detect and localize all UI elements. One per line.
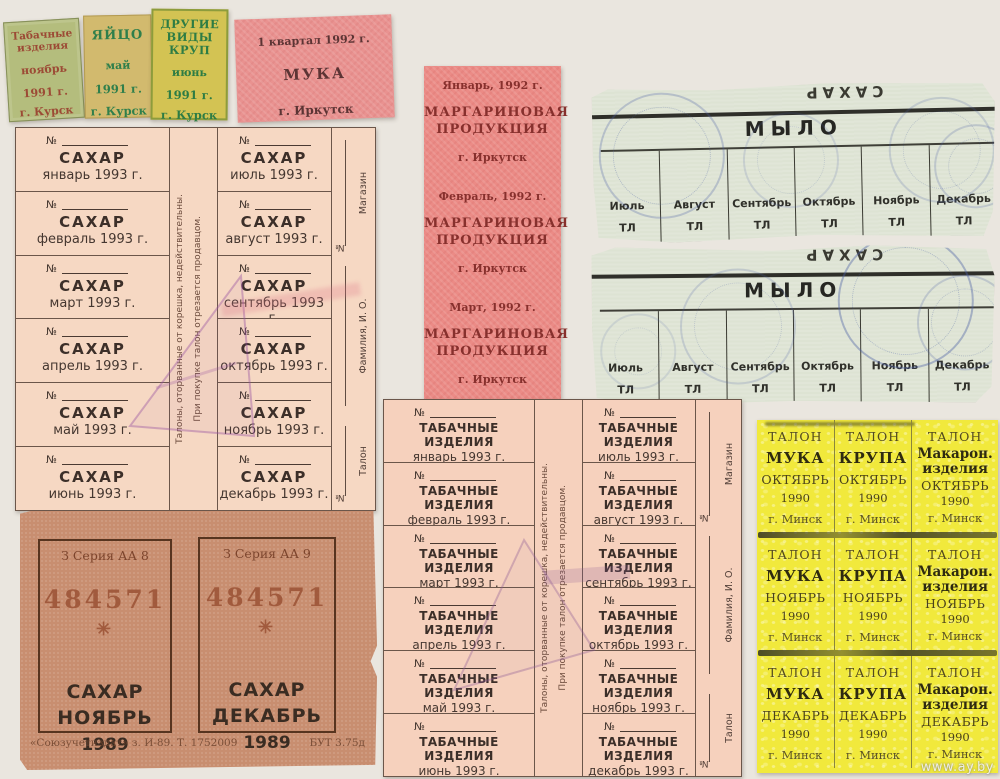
- city-label: г. Курск: [152, 108, 225, 123]
- number-label: №: [239, 200, 250, 210]
- number-label: №: [699, 758, 709, 768]
- coupon-pair-sugar-1989: З Серия АА 8 484571 ✳ САХАР НОЯБРЬ 1989 …: [20, 511, 377, 770]
- number-blank-line: [620, 605, 676, 606]
- month-label: июнь 1993 г.: [384, 764, 534, 776]
- sugar-coupon-cell: №САХАРиюнь 1993 г.: [16, 447, 169, 510]
- city-label: г. Минск: [768, 630, 822, 644]
- sugar-coupon-cell: №САХАРиюль 1993 г.: [217, 128, 331, 192]
- sugar-stub-column: Магазин№ Фамилия, И. О. Талон№: [331, 128, 375, 510]
- month-label: январь 1993 г.: [384, 450, 534, 463]
- coupon-sheet-sugar-1993: №САХАРянварь 1993 г. №САХАРфевраль 1993 …: [15, 127, 376, 511]
- product-name: ТАБАЧНЫЕ ИЗДЕЛИЯ: [384, 484, 534, 512]
- sugar-left-column: №САХАРянварь 1993 г. №САХАРфевраль 1993 …: [16, 128, 169, 510]
- city-label: г. Минск: [928, 747, 982, 761]
- product-name: САХАР: [200, 679, 334, 701]
- talon-label: ТАЛОН: [846, 665, 900, 680]
- talon-label: ТАЛОН: [846, 547, 900, 562]
- product-name: САХАР: [217, 468, 331, 486]
- number-label: №: [239, 136, 250, 146]
- sugar-coupon-cell: №САХАРоктябрь 1993 г.: [217, 319, 331, 383]
- talon-cell-flour: ТАЛОНМУКАНОЯБРЬ1990г. Минск: [757, 538, 835, 650]
- product-name: ТАБАЧНЫЕ ИЗДЕЛИЯ: [582, 735, 695, 763]
- year-label: 1990: [781, 727, 810, 741]
- product-name: САХАР: [217, 404, 331, 422]
- number-label: №: [604, 596, 615, 606]
- series-label: З Серия АА 8: [40, 548, 170, 563]
- sugar-coupon-cell: №САХАРмарт 1993 г.: [16, 256, 169, 320]
- month-label: ОКТЯБРЬ: [839, 472, 907, 487]
- coupon-soap-strip-2: САХАР МЫЛО ИюльТЛ АвгустТЛ СентябрьТЛ Ок…: [591, 244, 995, 406]
- product-name: ТАБАЧНЫЕ ИЗДЕЛИЯ: [384, 735, 534, 763]
- number-label: №: [239, 455, 250, 465]
- year-label: 1990: [781, 609, 810, 623]
- sugar-coupon-cell: №САХАРдекабрь 1993 г.: [217, 447, 331, 510]
- month-label: НОЯБРЬ: [40, 707, 170, 729]
- year-label: 1990: [858, 609, 887, 623]
- month-label: Октябрь: [801, 359, 854, 372]
- shop-label: Магазин: [724, 443, 735, 485]
- number-label: №: [699, 512, 709, 522]
- blank-line: [709, 694, 710, 762]
- product-name: ТАБАЧНЫЕ ИЗДЕЛИЯ: [582, 672, 695, 700]
- number-label: №: [414, 534, 425, 544]
- tobacco-coupon-cell: №ТАБАЧНЫЕ ИЗДЕЛИЯмай 1993 г.: [384, 651, 534, 714]
- number-blank-line: [62, 273, 128, 274]
- blue-round-stamp: [680, 268, 797, 385]
- number-blank-line: [255, 145, 311, 146]
- talon-cell-flour: ТАЛОНМУКАДЕКАБРЬ1990г. Минск: [757, 656, 835, 768]
- month-label: апрель 1993 г.: [16, 359, 169, 374]
- year-label: 1990: [940, 494, 969, 508]
- minsk-row-october: ТАЛОНМУКАОКТЯБРЬ1990г. Минск ТАЛОНКРУПАО…: [757, 420, 998, 532]
- tobacco-coupon-cell: №ТАБАЧНЫЕ ИЗДЕЛИЯиюль 1993 г.: [582, 400, 695, 463]
- sugar-coupon-cell: №САХАРавгуст 1993 г.: [217, 192, 331, 256]
- sugar-coupon-cell: №САХАРноябрь 1993 г.: [217, 383, 331, 447]
- product-name: МУКА: [766, 685, 825, 703]
- number-blank-line: [620, 731, 676, 732]
- product-name: изделия: [922, 461, 988, 477]
- month-label: Март, 1992 г.: [424, 301, 561, 314]
- tobacco-coupon-cell: №ТАБАЧНЫЕ ИЗДЕЛИЯавгуст 1993 г.: [582, 463, 695, 526]
- product-name: изделия: [922, 697, 988, 713]
- city-label: г. Минск: [928, 629, 982, 643]
- spine-warning-text: При покупке талон отрезается продавцом.: [558, 485, 568, 691]
- number-label: №: [414, 596, 425, 606]
- number-label: №: [604, 722, 615, 732]
- tobacco-coupon-cell: №ТАБАЧНЫЕ ИЗДЕЛИЯноябрь 1993 г.: [582, 651, 695, 714]
- product-name: САХАР: [217, 213, 331, 231]
- city-label: г. Иркутск: [424, 151, 561, 164]
- number-label: №: [414, 471, 425, 481]
- city-label: г. Иркутск: [237, 100, 394, 119]
- margarine-section: Март, 1992 г. МАРГАРИНОВАЯ ПРОДУКЦИЯ г. …: [424, 288, 561, 399]
- tobacco-coupon-cell: №ТАБАЧНЫЕ ИЗДЕЛИЯмарт 1993 г.: [384, 526, 534, 589]
- minsk-row-december: ТАЛОНМУКАДЕКАБРЬ1990г. Минск ТАЛОНКРУПАД…: [757, 656, 998, 768]
- talon-label: ТАЛОН: [768, 547, 822, 562]
- month-label: НОЯБРЬ: [925, 596, 985, 611]
- number-blank-line: [620, 543, 676, 544]
- product-name: ТАБАЧНЫЕ ИЗДЕЛИЯ: [582, 421, 695, 449]
- number-blank-line: [62, 209, 128, 210]
- number-blank-line: [255, 209, 311, 210]
- talon-label: ТАЛОН: [768, 429, 822, 444]
- star-symbol: ✳: [96, 619, 114, 640]
- margarine-section: Февраль, 1992 г. МАРГАРИНОВАЯ ПРОДУКЦИЯ …: [424, 177, 561, 288]
- month-label: ДЕКАБРЬ: [921, 714, 989, 729]
- month-label: июнь: [153, 66, 226, 80]
- blank-line: [709, 536, 710, 674]
- year-label: 1991 г.: [85, 81, 151, 96]
- month-label: Январь, 1992 г.: [424, 79, 561, 92]
- sugar-coupon-cell: №САХАРапрель 1993 г.: [16, 319, 169, 383]
- month-label: июль 1993 г.: [217, 168, 331, 183]
- year-label: 1990: [858, 491, 887, 505]
- product-name: ТАБАЧНЫЕ ИЗДЕЛИЯ: [384, 547, 534, 575]
- sugar-right-column: №САХАРиюль 1993 г. №САХАРавгуст 1993 г. …: [217, 128, 331, 510]
- product-name: изделия: [17, 39, 69, 54]
- number-blank-line: [620, 668, 676, 669]
- year-label: 1990: [940, 730, 969, 744]
- number-label: №: [46, 327, 57, 337]
- number-label: №: [46, 200, 57, 210]
- unit-label: ТЛ: [685, 383, 702, 396]
- name-label: Фамилия, И. О.: [724, 568, 735, 643]
- product-name: ТАБАЧНЫЕ ИЗДЕЛИЯ: [582, 484, 695, 512]
- month-label: май 1993 г.: [16, 423, 169, 438]
- site-watermark: www.ay.by: [921, 760, 994, 775]
- product-name: КРУПА: [839, 567, 907, 585]
- name-label: Фамилия, И. О.: [358, 299, 369, 374]
- talon-label: Талон: [724, 713, 735, 743]
- coupon-sheet-tobacco-1993: №ТАБАЧНЫЕ ИЗДЕЛИЯянварь 1993 г. №ТАБАЧНЫ…: [383, 399, 742, 777]
- product-name: ТАБАЧНЫЕ ИЗДЕЛИЯ: [582, 609, 695, 637]
- sugar-coupon-cell: №САХАРмай 1993 г.: [16, 383, 169, 447]
- product-name: САХАР: [16, 213, 169, 231]
- product-name: МУКА: [766, 567, 825, 585]
- number-blank-line: [430, 417, 496, 418]
- month-label: октябрь 1993 г.: [582, 638, 695, 651]
- shop-label: Магазин: [358, 172, 369, 214]
- unit-label: ТЛ: [819, 382, 836, 395]
- month-label: Февраль, 1992 г.: [424, 190, 561, 203]
- unit-label: ТЛ: [686, 220, 703, 233]
- product-name: МАРГАРИНОВАЯ: [424, 105, 569, 120]
- product-name: ТАБАЧНЫЕ ИЗДЕЛИЯ: [384, 609, 534, 637]
- product-name: ПРОДУКЦИЯ: [436, 122, 549, 137]
- blank-line: [345, 140, 346, 246]
- month-label: июнь 1993 г.: [16, 487, 169, 502]
- talon-label: Талон: [358, 446, 369, 476]
- number-label: №: [239, 264, 250, 274]
- blank-line: [345, 426, 346, 496]
- product-name: Макарон.: [918, 682, 993, 698]
- unit-label: ТЛ: [887, 381, 904, 394]
- talon-label: ТАЛОН: [928, 547, 982, 562]
- number-label: №: [604, 659, 615, 669]
- unit-label: ТЛ: [888, 216, 905, 229]
- coupon-kursk-egg-1991: ЯЙЦО май 1991 г. г. Курск: [83, 14, 153, 118]
- number-label: №: [604, 471, 615, 481]
- product-name: МАРГАРИНОВАЯ: [424, 327, 569, 342]
- month-label: ОКТЯБРЬ: [761, 472, 829, 487]
- tobacco-coupon-cell: №ТАБАЧНЫЕ ИЗДЕЛИЯапрель 1993 г.: [384, 588, 534, 651]
- month-label: НОЯБРЬ: [765, 590, 825, 605]
- number-label: №: [604, 534, 615, 544]
- unit-label: ТЛ: [754, 219, 771, 232]
- number-label: №: [604, 408, 615, 418]
- coupon-sheet-minsk-1990: ТАЛОНМУКАОКТЯБРЬ1990г. Минск ТАЛОНКРУПАО…: [757, 420, 998, 773]
- number-blank-line: [430, 480, 496, 481]
- product-name: САХАР: [16, 149, 169, 167]
- product-name: изделия: [922, 579, 988, 595]
- tobacco-coupon-cell: №ТАБАЧНЫЕ ИЗДЕЛИЯдекабрь 1993 г.: [582, 714, 695, 776]
- talon-cell-groats: ТАЛОНКРУПАОКТЯБРЬ1990г. Минск: [835, 420, 913, 532]
- number-label: №: [46, 264, 57, 274]
- month-label: февраль 1993 г.: [384, 513, 534, 526]
- product-name: САХАР: [16, 404, 169, 422]
- talon-label: ТАЛОН: [928, 429, 982, 444]
- talon-cell-pasta: ТАЛОНМакарон.изделияНОЯБРЬ1990г. Минск: [912, 538, 998, 650]
- month-label: апрель 1993 г.: [384, 638, 534, 651]
- month-label: февраль 1993 г.: [16, 232, 169, 247]
- number-label: №: [335, 492, 345, 502]
- month-label: НОЯБРЬ: [843, 590, 903, 605]
- month-label: март 1993 г.: [16, 296, 169, 311]
- number-blank-line: [430, 543, 496, 544]
- coupon-irkutsk-flour-1992: 1 квартал 1992 г. МУКА г. Иркутск: [234, 14, 394, 122]
- product-name: КРУП: [169, 43, 210, 57]
- month-label: декабрь 1993 г.: [217, 487, 331, 502]
- product-name: Макарон.: [918, 446, 993, 462]
- city-label: г. Курск: [9, 103, 84, 120]
- coupon-soap-strip-1: САХАР МЫЛО ИюльТЛ АвгустТЛ СентябрьТЛ Ок…: [591, 80, 997, 244]
- coupon-kursk-tobacco-1991: Табачные изделия ноябрь 1991 г. г. Курск: [3, 18, 85, 122]
- number-label: №: [46, 136, 57, 146]
- inverted-sugar-label: САХАР: [801, 82, 883, 102]
- number-blank-line: [620, 480, 676, 481]
- sugar-1989-december-cell: З Серия АА 9 484571 ✳ САХАР ДЕКАБРЬ 1989: [198, 537, 336, 733]
- number-blank-line: [255, 464, 311, 465]
- city-label: г. Минск: [768, 512, 822, 526]
- tobacco-coupon-cell: №ТАБАЧНЫЕ ИЗДЕЛИЯфевраль 1993 г.: [384, 463, 534, 526]
- print-code: БУТ 3.75д: [310, 737, 366, 749]
- spine-warning-text: При покупке талон отрезается продавцом.: [193, 216, 203, 422]
- city-label: г. Минск: [846, 748, 900, 762]
- sugar-coupon-cell: №САХАРфевраль 1993 г.: [16, 192, 169, 256]
- sugar-counterfoil-spine: Талоны, оторванные от корешка, недействи…: [169, 128, 218, 510]
- number-blank-line: [255, 273, 311, 274]
- number-blank-line: [255, 400, 311, 401]
- talon-label: ТАЛОН: [928, 665, 982, 680]
- unit-label: ТЛ: [752, 382, 769, 395]
- month-label: август 1993 г.: [217, 232, 331, 247]
- product-name: САХАР: [40, 681, 170, 703]
- month-label: ноябрь 1993 г.: [217, 423, 331, 438]
- tobacco-left-column: №ТАБАЧНЫЕ ИЗДЕЛИЯянварь 1993 г. №ТАБАЧНЫ…: [384, 400, 534, 776]
- product-name: ТАБАЧНЫЕ ИЗДЕЛИЯ: [384, 672, 534, 700]
- city-label: г. Минск: [768, 748, 822, 762]
- product-name: ТАБАЧНЫЕ ИЗДЕЛИЯ: [384, 421, 534, 449]
- unit-label: ТЛ: [619, 221, 636, 234]
- talon-label: ТАЛОН: [768, 665, 822, 680]
- product-name: МУКА: [766, 449, 825, 467]
- tobacco-coupon-cell: №ТАБАЧНЫЕ ИЗДЕЛИЯоктябрь 1993 г.: [582, 588, 695, 651]
- number-blank-line: [62, 400, 128, 401]
- month-label: ноябрь: [7, 61, 82, 78]
- talon-cell-groats: ТАЛОНКРУПАДЕКАБРЬ1990г. Минск: [835, 656, 913, 768]
- number-label: №: [414, 722, 425, 732]
- month-label: ДЕКАБРЬ: [761, 708, 829, 723]
- year-label: 1991 г.: [8, 84, 83, 101]
- number-blank-line: [430, 668, 496, 669]
- margarine-section: Январь, 1992 г. МАРГАРИНОВАЯ ПРОДУКЦИЯ г…: [424, 66, 561, 177]
- series-label: З Серия АА 9: [200, 546, 334, 561]
- number-blank-line: [255, 336, 311, 337]
- city-label: г. Минск: [846, 630, 900, 644]
- talon-label: ТАЛОН: [846, 429, 900, 444]
- year-label: 1990: [781, 491, 810, 505]
- product-name: САХАР: [217, 149, 331, 167]
- product-name: САХАР: [217, 340, 331, 358]
- scanned-ration-coupons-page: Табачные изделия ноябрь 1991 г. г. Курск…: [0, 0, 1000, 779]
- product-name: КРУПА: [839, 685, 907, 703]
- tobacco-coupon-cell: №ТАБАЧНЫЕ ИЗДЕЛИЯиюнь 1993 г.: [384, 714, 534, 776]
- year-label: 1990: [858, 727, 887, 741]
- talon-cell-groats: ТАЛОНКРУПАНОЯБРЬ1990г. Минск: [835, 538, 913, 650]
- coupon-kursk-groats-1991: ДРУГИЕ ВИДЫ КРУП июнь 1991 г. г. Курск: [151, 9, 229, 121]
- sugar-coupon-cell: №САХАРянварь 1993 г.: [16, 128, 169, 192]
- unit-label: ТЛ: [956, 214, 973, 227]
- blue-round-stamp: [600, 313, 677, 390]
- coupon-strip-irkutsk-margarine-1992: Январь, 1992 г. МАРГАРИНОВАЯ ПРОДУКЦИЯ г…: [424, 66, 561, 399]
- number-blank-line: [430, 605, 496, 606]
- product-name: САХАР: [16, 468, 169, 486]
- talon-cell-pasta: ТАЛОНМакарон.изделияДЕКАБРЬ1990г. Минск: [912, 656, 998, 768]
- city-label: г. Иркутск: [424, 262, 561, 275]
- month-label: ДЕКАБРЬ: [200, 705, 334, 727]
- printer-imprint: «Союзучетиздат» з. И-89. Т. 1752009: [30, 737, 237, 749]
- city-label: г. Курск: [86, 103, 152, 118]
- month-label: октябрь 1993 г.: [217, 359, 331, 374]
- city-label: г. Минск: [846, 512, 900, 526]
- product-name: ЯЙЦО: [84, 27, 150, 43]
- month-label: август 1993 г.: [582, 513, 695, 526]
- talon-cell-flour: ТАЛОНМУКАОКТЯБРЬ1990г. Минск: [757, 420, 835, 532]
- city-label: г. Иркутск: [424, 373, 561, 386]
- talon-cell-pasta: ТАЛОНМакарон.изделияОКТЯБРЬ1990г. Минск: [912, 420, 998, 532]
- month-label: март 1993 г.: [384, 576, 534, 589]
- unit-label: ТЛ: [821, 217, 838, 230]
- tobacco-counterfoil-spine: Талоны, оторванные от корешка, недействи…: [534, 400, 583, 776]
- month-label: ОКТЯБРЬ: [921, 478, 989, 493]
- product-name: САХАР: [16, 277, 169, 295]
- quarter-label: 1 квартал 1992 г.: [235, 31, 392, 49]
- minsk-row-november: ТАЛОНМУКАНОЯБРЬ1990г. Минск ТАЛОНКРУПАНО…: [757, 538, 998, 650]
- number-label: №: [239, 327, 250, 337]
- product-name: Макарон.: [918, 564, 993, 580]
- number-blank-line: [62, 145, 128, 146]
- serial-number: 484571: [44, 585, 166, 614]
- number-label: №: [46, 455, 57, 465]
- month-label: май 1993 г.: [384, 701, 534, 714]
- city-label: г. Минск: [928, 511, 982, 525]
- serial-number: 484571: [206, 583, 328, 612]
- month-label: январь 1993 г.: [16, 168, 169, 183]
- spine-warning-text: Талоны, оторванные от корешка, недействи…: [175, 194, 185, 444]
- unit-label: ТЛ: [954, 380, 971, 393]
- month-label: ДЕКАБРЬ: [839, 708, 907, 723]
- number-label: №: [46, 391, 57, 401]
- number-blank-line: [430, 731, 496, 732]
- year-label: 1990: [940, 612, 969, 626]
- tobacco-coupon-cell: №ТАБАЧНЫЕ ИЗДЕЛИЯянварь 1993 г.: [384, 400, 534, 463]
- month-label: ноябрь 1993 г.: [582, 701, 695, 714]
- month-label: декабрь 1993 г.: [582, 764, 695, 776]
- tobacco-coupon-cell: №ТАБАЧНЫЕ ИЗДЕЛИЯсентябрь 1993 г.: [582, 526, 695, 589]
- number-label: №: [414, 659, 425, 669]
- tobacco-stub-column: Магазин№ Фамилия, И. О. Талон№: [695, 400, 741, 776]
- month-label: Ноябрь: [873, 193, 920, 207]
- number-label: №: [414, 408, 425, 418]
- product-name: ТАБАЧНЫЕ ИЗДЕЛИЯ: [582, 547, 695, 575]
- number-blank-line: [620, 417, 676, 418]
- product-name: КРУПА: [839, 449, 907, 467]
- star-symbol: ✳: [258, 617, 276, 638]
- product-name: ПРОДУКЦИЯ: [436, 344, 549, 359]
- number-label: №: [239, 391, 250, 401]
- number-blank-line: [62, 464, 128, 465]
- month-label: май: [85, 58, 151, 72]
- spine-warning-text: Талоны, оторванные от корешка, недействи…: [540, 463, 550, 713]
- month-label: сентябрь 1993 г.: [582, 576, 695, 589]
- sugar-1989-november-cell: З Серия АА 8 484571 ✳ САХАР НОЯБРЬ 1989: [38, 539, 172, 733]
- number-label: №: [335, 242, 345, 252]
- tobacco-right-column: №ТАБАЧНЫЕ ИЗДЕЛИЯиюль 1993 г. №ТАБАЧНЫЕ …: [582, 400, 695, 776]
- blank-line: [709, 412, 710, 516]
- year-label: 1991 г.: [153, 88, 226, 103]
- month-label: июль 1993 г.: [582, 450, 695, 463]
- product-name: ПРОДУКЦИЯ: [436, 233, 549, 248]
- number-blank-line: [62, 336, 128, 337]
- product-name: МУКА: [236, 62, 394, 85]
- product-name: САХАР: [16, 340, 169, 358]
- product-name: МАРГАРИНОВАЯ: [424, 216, 569, 231]
